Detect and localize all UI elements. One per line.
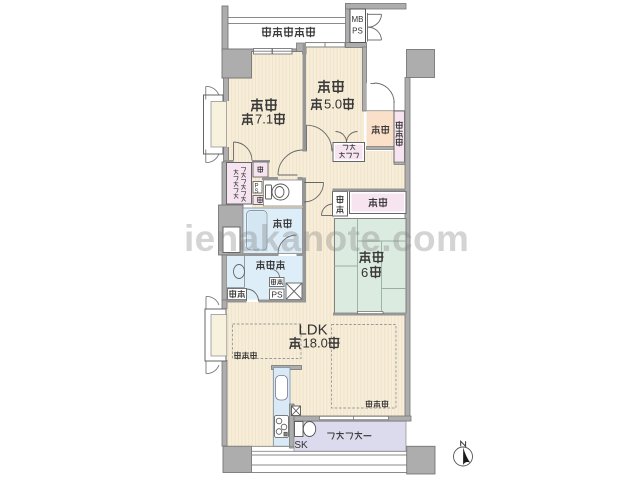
svg-text:PS: PS [352,27,363,36]
svg-text:SK: SK [294,440,308,451]
svg-text:18.0: 18.0 [303,336,328,351]
svg-text:PS: PS [271,290,283,300]
svg-text:ienakanote.com: ienakanote.com [184,218,469,259]
svg-text:7.1: 7.1 [255,112,273,127]
svg-text:MB: MB [352,15,364,24]
svg-text:S: S [255,189,259,195]
svg-text:5.0: 5.0 [324,97,342,112]
svg-text:6: 6 [361,265,368,280]
